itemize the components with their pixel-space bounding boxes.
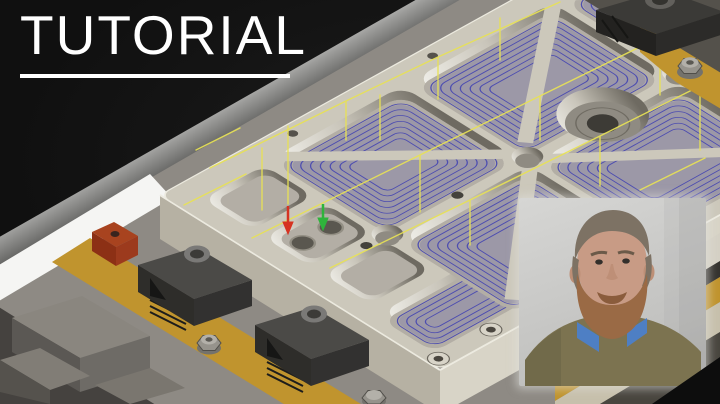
presenter-photo bbox=[519, 198, 706, 386]
thumbnail-stage: TUTORIAL bbox=[0, 0, 720, 404]
title-underline bbox=[20, 74, 290, 78]
eye bbox=[595, 259, 603, 264]
person-illustration bbox=[519, 198, 706, 386]
eye bbox=[622, 258, 630, 263]
tutorial-title: TUTORIAL bbox=[20, 7, 307, 65]
